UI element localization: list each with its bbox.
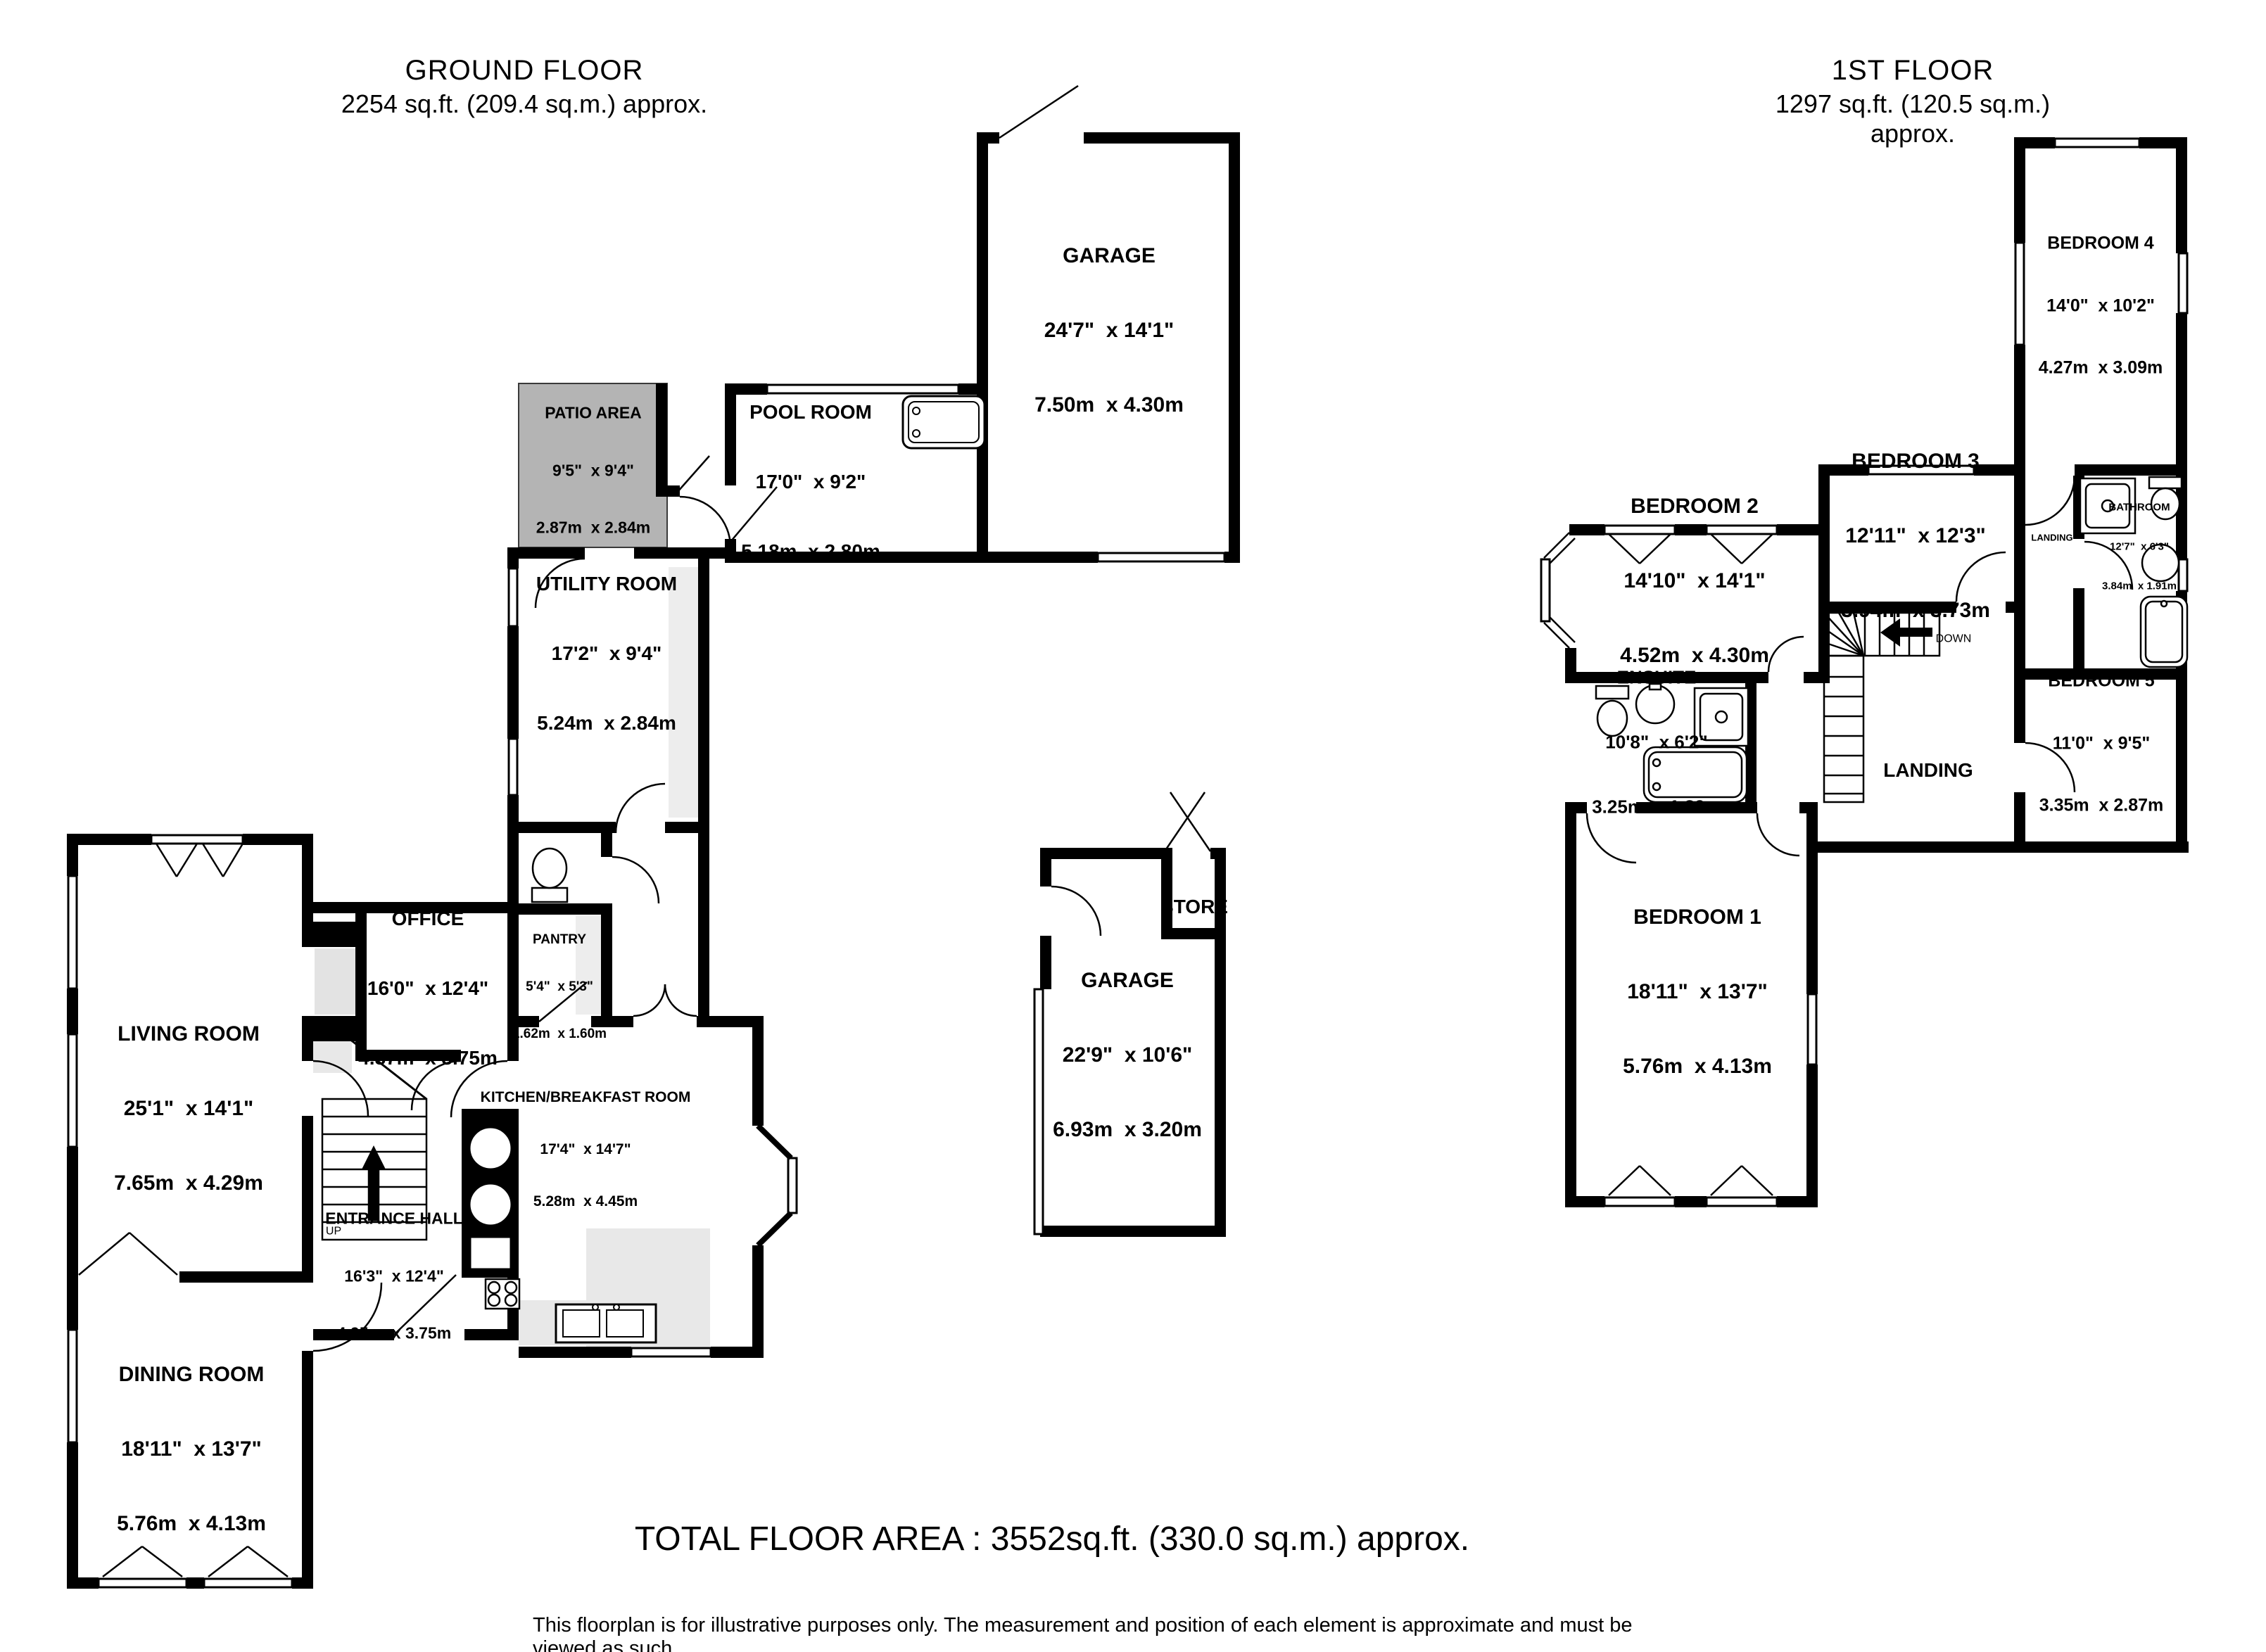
bath-icon xyxy=(903,396,985,448)
ground-floor-title: GROUND FLOOR xyxy=(341,55,707,87)
room-label-landing: LANDING xyxy=(1883,712,1973,805)
ground-floor-header: GROUND FLOOR 2254 sq.ft. (209.4 sq.m.) a… xyxy=(341,55,707,119)
room-label-entrance-hall: ENTRANCE HALL 16'3" x 12'4" 4.95m x 3.75… xyxy=(325,1171,463,1361)
room-label-bedroom-4: BEDROOM 4 14'0" x 10'2" 4.27m x 3.09m xyxy=(2039,192,2163,400)
first-floor-title: 1ST FLOOR xyxy=(1736,55,2089,87)
room-label-kitchen: KITCHEN/BREAKFAST ROOM 17'4" x 14'7" 5.2… xyxy=(481,1054,691,1228)
room-label-rear-garage: GARAGE 22'9" x 10'6" 6.93m x 3.20m xyxy=(1053,918,1202,1167)
hob-icon xyxy=(486,1279,519,1309)
room-label-utility-room: UTILITY ROOM 17'2" x 9'4" 5.24m x 2.84m xyxy=(536,526,677,758)
room-label-office: OFFICE 16'0" x 12'4" 4.87m x 3.75m xyxy=(358,860,498,1093)
stairs-up-label: UP xyxy=(326,1198,341,1252)
room-label-pool-room: POOL ROOM 17'0" x 9'2" 5.18m x 2.80m xyxy=(741,354,880,586)
room-label-living-room: LIVING ROOM 25'1" x 14'1" 7.65m x 4.29m xyxy=(114,972,263,1221)
disclaimer-text: This floorplan is for illustrative purpo… xyxy=(533,1614,1688,1652)
stairs-down-label: DOWN xyxy=(1936,606,1972,659)
first-floor-area: 1297 sq.ft. (120.5 sq.m.) approx. xyxy=(1736,89,2089,148)
room-label-bedroom-1: BEDROOM 1 18'11" x 13'7" 5.76m x 4.13m xyxy=(1623,855,1772,1104)
ground-floor-area: 2254 sq.ft. (209.4 sq.m.) approx. xyxy=(341,89,707,119)
room-label-ensuite: ENSUITE 10'8" x 6'2" 3.25m x 1.89m xyxy=(1592,624,1721,840)
room-label-pantry: PANTRY 5'4" x 5'3" 1.62m x 1.60m xyxy=(512,901,607,1058)
room-label-dining-room: DINING ROOM 18'11" x 13'7" 5.76m x 4.13m xyxy=(117,1312,266,1561)
room-label-garage: GARAGE 24'7" x 14'1" 7.50m x 4.30m xyxy=(1034,193,1184,443)
room-label-store: STORE xyxy=(1160,849,1228,941)
floorplan-page: GROUND FLOOR 2254 sq.ft. (209.4 sq.m.) a… xyxy=(0,0,2266,1652)
sink-unit-icon xyxy=(556,1304,656,1342)
room-label-bathroom: BATHROOM 12'7" x 6'3" 3.84m x 1.91m xyxy=(2102,474,2177,606)
total-floor-area: TOTAL FLOOR AREA : 3552sq.ft. (330.0 sq.… xyxy=(635,1520,1469,1558)
toilet-icon xyxy=(532,849,567,902)
room-label-landing-small: LANDING xyxy=(2031,510,2072,553)
room-label-bedroom-5: BEDROOM 5 11'0" x 9'5" 3.35m x 2.87m xyxy=(2039,630,2164,837)
first-floor-header: 1ST FLOOR 1297 sq.ft. (120.5 sq.m.) appr… xyxy=(1736,55,2089,148)
